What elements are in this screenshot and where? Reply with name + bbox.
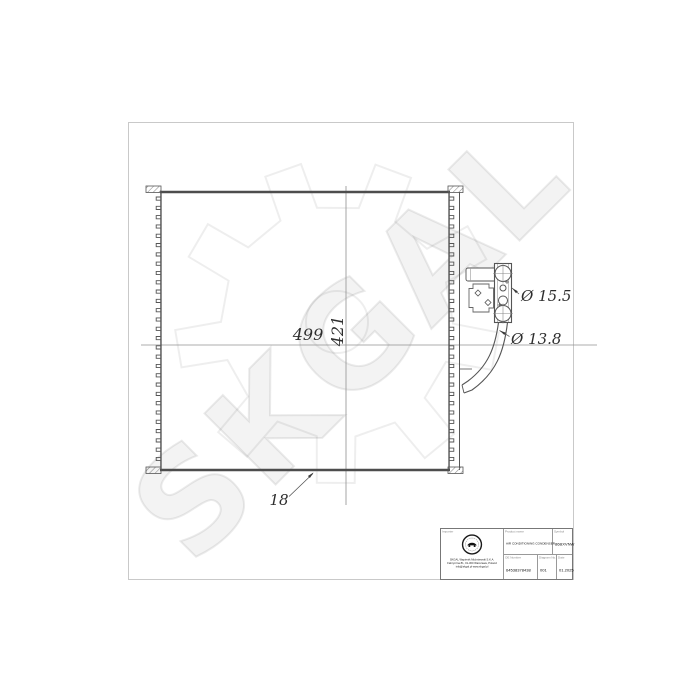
- company-address: SKGAL Wapienik Michniewski S.K.A. Fabryc…: [442, 558, 502, 569]
- left-tank: [146, 186, 161, 474]
- product-name-cell: Product name AIR CONDITIONING CONDENSER: [504, 529, 553, 554]
- date-value: 01.2025: [559, 568, 574, 573]
- symbol-label: Symbol: [554, 530, 564, 533]
- date-label: Date: [558, 556, 564, 559]
- date-cell: Date 01.2025: [557, 555, 572, 580]
- diagram-no-cell: Diagram No. 001: [538, 555, 557, 580]
- diagram-no-label: Diagram No.: [539, 556, 556, 559]
- drawing-page: SKGAL: [0, 0, 700, 700]
- product-name-label: Product name: [505, 530, 524, 533]
- company-stamp-icon: [462, 534, 483, 555]
- symbol-cell: Symbol 86BXVNW: [553, 529, 572, 554]
- dim-depth-label: 18: [269, 491, 288, 509]
- company-logo: [462, 534, 483, 560]
- oe-number-label: OE Number: [505, 556, 521, 559]
- title-block: Importer SKGAL Wapienik Michniewski S.K.…: [440, 528, 573, 580]
- dim-width-label: 499: [292, 325, 324, 344]
- dim-height-label: 421: [328, 316, 347, 348]
- port-large-label: Ø 15.5: [520, 287, 571, 305]
- importer-label: Importer: [442, 530, 453, 533]
- dimension-labels: 499 421 18 Ø 15.5 Ø 13.8: [269, 287, 571, 509]
- company-line-3: info@skgal.pl www.skgal.pl: [442, 565, 502, 569]
- oe-number-value: 64538378438: [506, 568, 531, 573]
- fitting-assembly: [462, 264, 513, 394]
- mounting-bracket: [469, 284, 494, 312]
- symbol-value: 86BXVNW: [555, 542, 574, 547]
- port-small-label: Ø 13.8: [510, 330, 561, 348]
- product-name-value: AIR CONDITIONING CONDENSER: [506, 542, 555, 545]
- oe-number-cell: OE Number 64538378438: [504, 555, 538, 580]
- diagram-no-value: 001: [540, 568, 547, 573]
- condenser-technical-drawing: 499 421 18 Ø 15.5 Ø 13.8: [0, 0, 700, 700]
- importer-cell: Importer SKGAL Wapienik Michniewski S.K.…: [441, 529, 504, 579]
